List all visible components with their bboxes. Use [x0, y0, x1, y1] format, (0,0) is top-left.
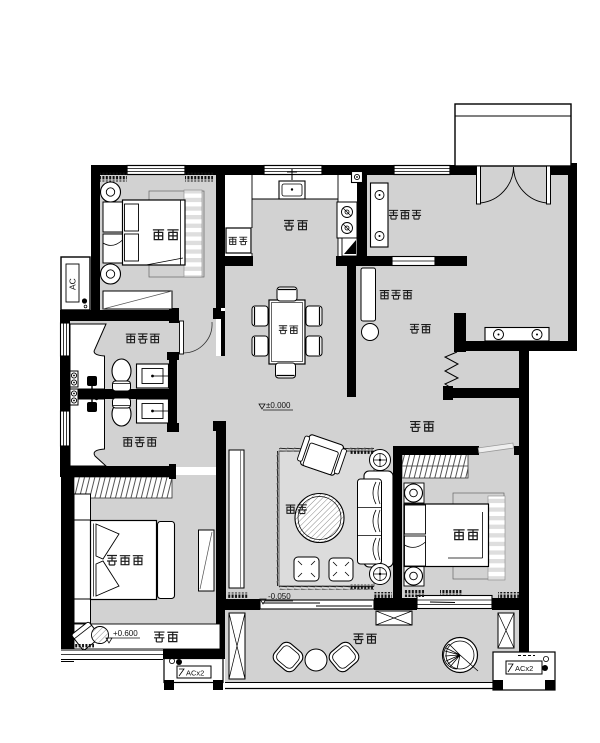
svg-text:±0.000: ±0.000	[266, 401, 291, 410]
svg-text:-0.050: -0.050	[268, 592, 291, 601]
svg-text:ACx2: ACx2	[186, 669, 204, 678]
svg-text:AC: AC	[68, 278, 78, 290]
svg-text:+0.600: +0.600	[113, 629, 138, 638]
svg-text:ACx2: ACx2	[515, 664, 533, 673]
